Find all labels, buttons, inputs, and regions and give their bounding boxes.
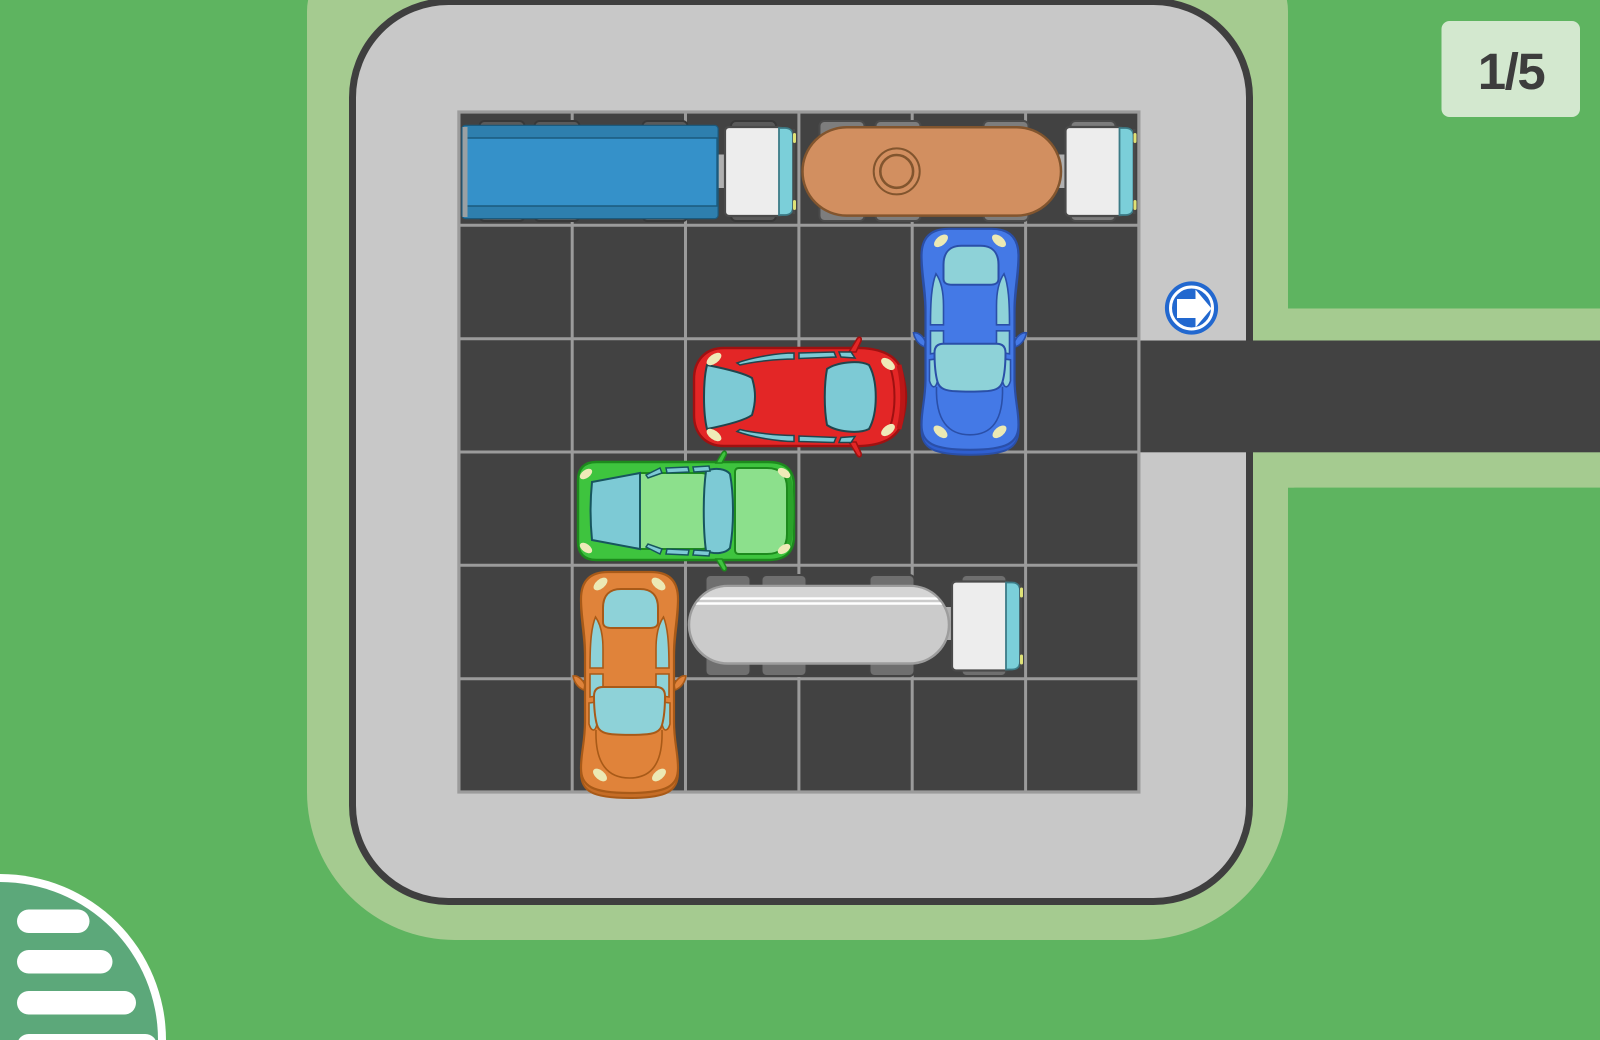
svg-text:1/5: 1/5	[1478, 43, 1545, 100]
